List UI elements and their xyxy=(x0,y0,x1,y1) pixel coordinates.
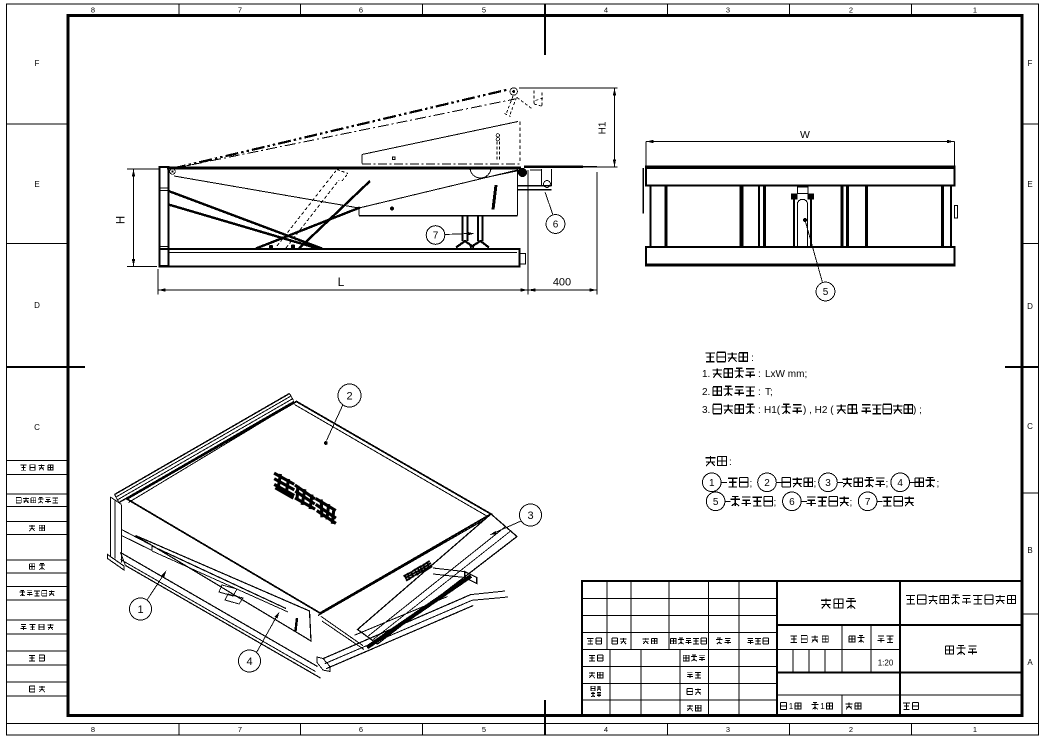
svg-text:7: 7 xyxy=(238,6,242,15)
svg-text:H1: H1 xyxy=(598,121,609,134)
svg-text:6: 6 xyxy=(359,725,363,734)
svg-text:6: 6 xyxy=(359,6,363,15)
svg-text:L: L xyxy=(338,275,345,289)
svg-text:1: 1 xyxy=(137,604,143,616)
svg-text:5: 5 xyxy=(482,6,486,15)
svg-text:F: F xyxy=(1028,59,1033,68)
svg-text:3: 3 xyxy=(726,725,730,734)
svg-text:1:20: 1:20 xyxy=(878,659,894,668)
svg-text:3: 3 xyxy=(726,6,730,15)
svg-text:1: 1 xyxy=(709,478,715,489)
svg-text::: : xyxy=(758,387,761,398)
svg-text:2: 2 xyxy=(346,391,352,403)
svg-text:) , H2 (: ) , H2 ( xyxy=(803,405,834,416)
svg-text:;: ; xyxy=(886,479,889,490)
svg-text:6: 6 xyxy=(553,220,559,231)
svg-text:5: 5 xyxy=(823,287,829,298)
svg-text:D: D xyxy=(34,301,40,310)
svg-text:3: 3 xyxy=(527,510,533,522)
svg-text:7: 7 xyxy=(865,497,871,508)
svg-text:;: ; xyxy=(850,498,853,509)
svg-text:4: 4 xyxy=(604,6,608,15)
svg-text:;: ; xyxy=(750,479,753,490)
svg-text:;: ; xyxy=(937,479,940,490)
svg-text:T;: T; xyxy=(765,387,773,398)
svg-text::: : xyxy=(729,457,732,468)
svg-text:400: 400 xyxy=(553,277,571,289)
svg-text:1: 1 xyxy=(820,702,825,711)
svg-text:LxW mm;: LxW mm; xyxy=(765,369,807,380)
svg-text:H: H xyxy=(116,216,128,224)
svg-text:8: 8 xyxy=(91,725,95,734)
svg-text:) ;: ) ; xyxy=(913,405,922,416)
svg-text:4: 4 xyxy=(604,725,608,734)
svg-text:;: ; xyxy=(814,479,817,490)
svg-text:4: 4 xyxy=(897,478,903,489)
svg-text::: : xyxy=(751,353,754,364)
svg-text:2.: 2. xyxy=(702,387,710,398)
svg-text:2: 2 xyxy=(849,6,853,15)
svg-text:C: C xyxy=(34,423,40,432)
svg-text:A: A xyxy=(1027,658,1033,667)
svg-text:4: 4 xyxy=(246,656,252,668)
svg-text:F: F xyxy=(35,59,40,68)
svg-text:7: 7 xyxy=(433,231,439,242)
svg-text:1: 1 xyxy=(973,725,977,734)
svg-text:H1(: H1( xyxy=(764,405,781,416)
svg-text:5: 5 xyxy=(482,725,486,734)
svg-text:;: ; xyxy=(774,498,777,509)
svg-text:2: 2 xyxy=(849,725,853,734)
svg-text:C: C xyxy=(1027,422,1033,431)
svg-text:1.: 1. xyxy=(702,369,710,380)
svg-text:6: 6 xyxy=(789,497,795,508)
svg-text:E: E xyxy=(34,180,39,189)
svg-text::: : xyxy=(758,405,761,416)
svg-text:E: E xyxy=(1027,180,1032,189)
svg-text:W: W xyxy=(800,129,810,141)
svg-text:D: D xyxy=(1027,302,1033,311)
svg-text:1: 1 xyxy=(789,702,794,711)
svg-text:5: 5 xyxy=(713,497,719,508)
svg-text:B: B xyxy=(1027,546,1032,555)
svg-text:3.: 3. xyxy=(702,405,710,416)
svg-text::: : xyxy=(758,369,761,380)
svg-text:8: 8 xyxy=(91,6,95,15)
svg-text:,: , xyxy=(856,405,859,416)
svg-text:1: 1 xyxy=(973,6,977,15)
svg-text:7: 7 xyxy=(238,725,242,734)
svg-text:3: 3 xyxy=(825,478,831,489)
svg-text:2: 2 xyxy=(764,478,770,489)
